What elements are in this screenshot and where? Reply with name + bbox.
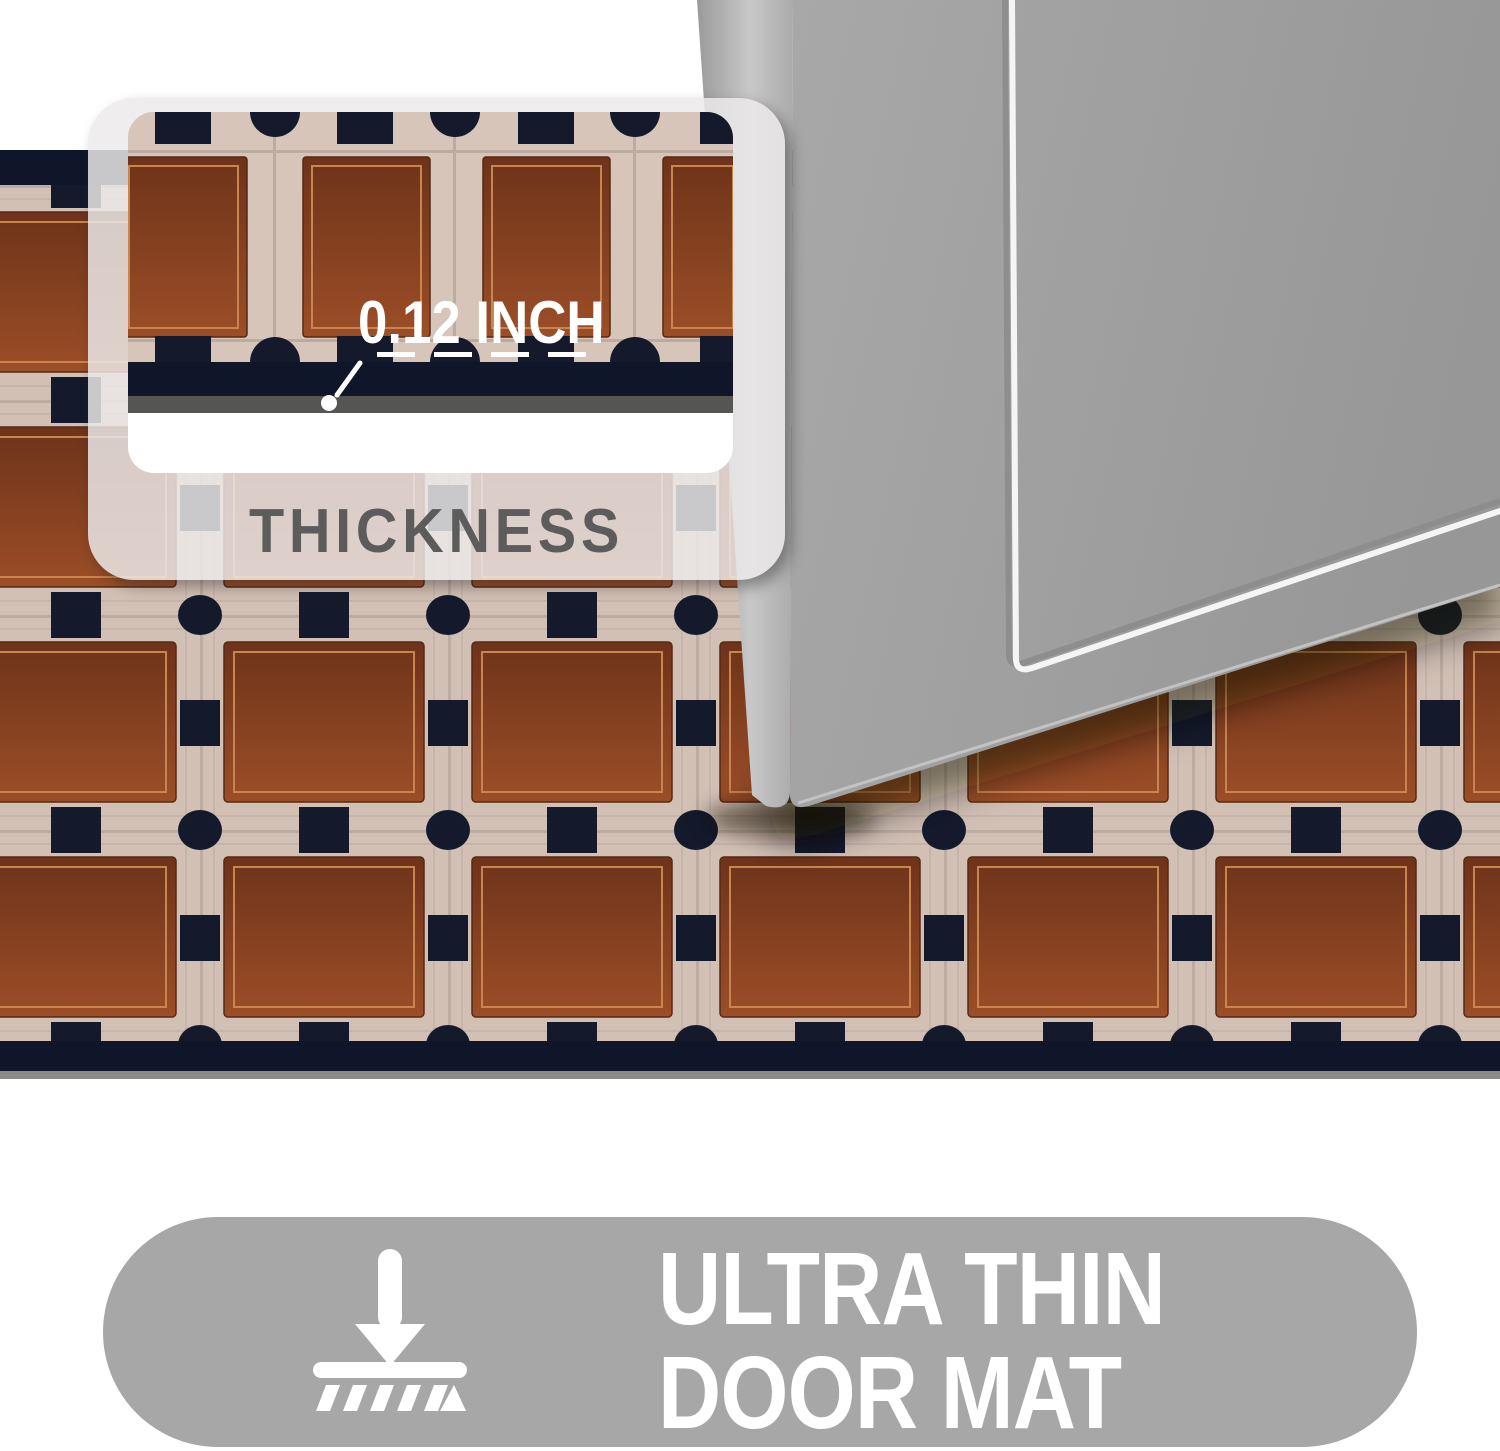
mat-side-edge [128, 362, 733, 396]
door-corner-shadow [705, 800, 875, 836]
banner-line-1: ULTRA THIN [658, 1237, 1165, 1341]
banner-text: ULTRA THIN DOOR MAT [658, 1237, 1165, 1445]
floor-shadow-strip [0, 1071, 1500, 1079]
thickness-value: 0.12 INCH [358, 288, 604, 357]
banner: ULTRA THIN DOOR MAT [103, 1217, 1417, 1447]
banner-line-2: DOOR MAT [658, 1341, 1165, 1445]
floor-white [128, 413, 733, 473]
thickness-callout: 0.12 INCH THICKNESS [88, 98, 785, 580]
broom-bar [313, 1362, 467, 1378]
thickness-label: THICKNESS [112, 496, 760, 567]
door-front-face [790, 0, 1500, 807]
press-flat-broom-icon [308, 1244, 470, 1416]
product-image: 0.12 INCH THICKNESS ULTRA TH [0, 0, 1500, 1451]
arrow-head [355, 1324, 425, 1366]
measure-dashed-line [377, 352, 589, 357]
mat-side-shadow [128, 396, 733, 413]
mat-closeup-photo: 0.12 INCH [128, 112, 733, 473]
broom-bristles [316, 1385, 466, 1411]
arrow-shaft [378, 1249, 402, 1329]
